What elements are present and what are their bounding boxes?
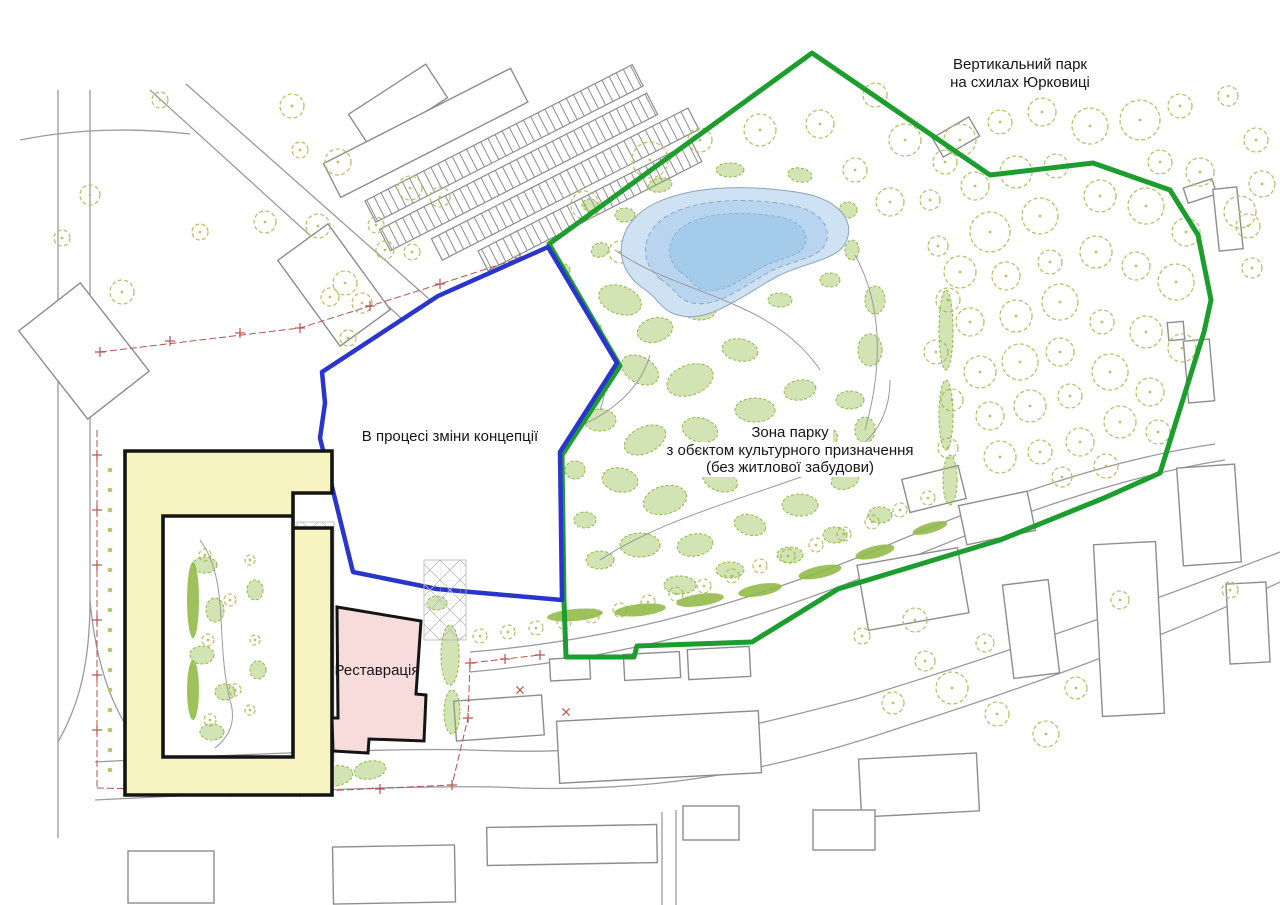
site-plan-canvas: Вертикальний парк на схилах Юрковиці В п… xyxy=(0,0,1280,905)
label-vertical-park-line2: на схилах Юрковиці xyxy=(930,74,1110,92)
restoration-building xyxy=(332,607,426,753)
label-restoration-line1: Реставрація xyxy=(322,662,432,680)
label-vertical-park-line1: Вертикальний парк xyxy=(930,56,1110,74)
label-vertical-park: Вертикальний парк на схилах Юрковиці xyxy=(930,56,1110,91)
label-park-zone-line2: з обєктом культурного призначення xyxy=(662,442,917,460)
label-park-zone-line3: (без житлової забудови) xyxy=(702,459,878,477)
plaza-pavement-2 xyxy=(424,560,466,640)
label-concept-area-line1: В процесі зміни концепції xyxy=(350,428,550,446)
label-concept-area: В процесі зміни концепції xyxy=(350,428,550,446)
label-restoration: Реставрація xyxy=(322,662,432,680)
pond xyxy=(621,188,848,317)
label-park-zone-line1: Зона парку xyxy=(747,424,832,442)
residential-building xyxy=(125,451,332,795)
label-park-zone: Зона парку з обєктом культурного признач… xyxy=(640,424,940,477)
